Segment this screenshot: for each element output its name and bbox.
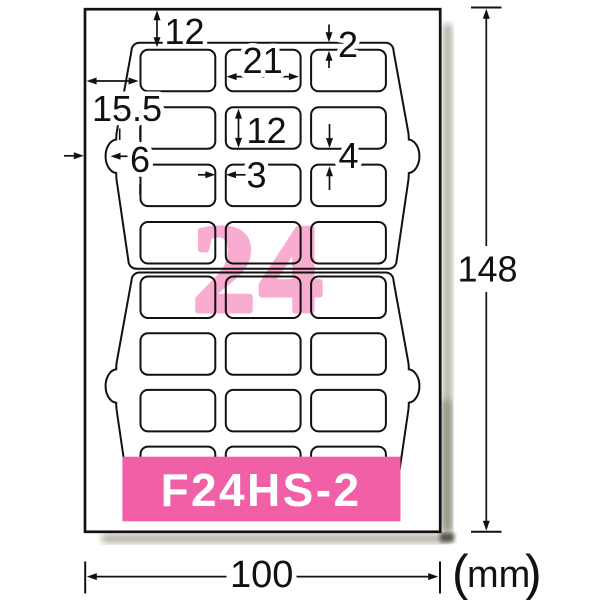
svg-text:100: 100 — [230, 554, 293, 596]
svg-text:6: 6 — [130, 139, 150, 180]
svg-text:): ) — [525, 545, 542, 600]
svg-text:4: 4 — [339, 135, 359, 176]
svg-text:3: 3 — [247, 155, 267, 196]
svg-text:F24HS-2: F24HS-2 — [161, 464, 362, 516]
svg-text:12: 12 — [247, 110, 287, 151]
svg-text:15.5: 15.5 — [92, 88, 162, 129]
svg-text:mm: mm — [467, 554, 530, 596]
svg-text:148: 148 — [458, 249, 518, 290]
svg-text:2: 2 — [338, 24, 358, 65]
svg-text:21: 21 — [243, 40, 283, 81]
svg-text:12: 12 — [165, 11, 205, 52]
